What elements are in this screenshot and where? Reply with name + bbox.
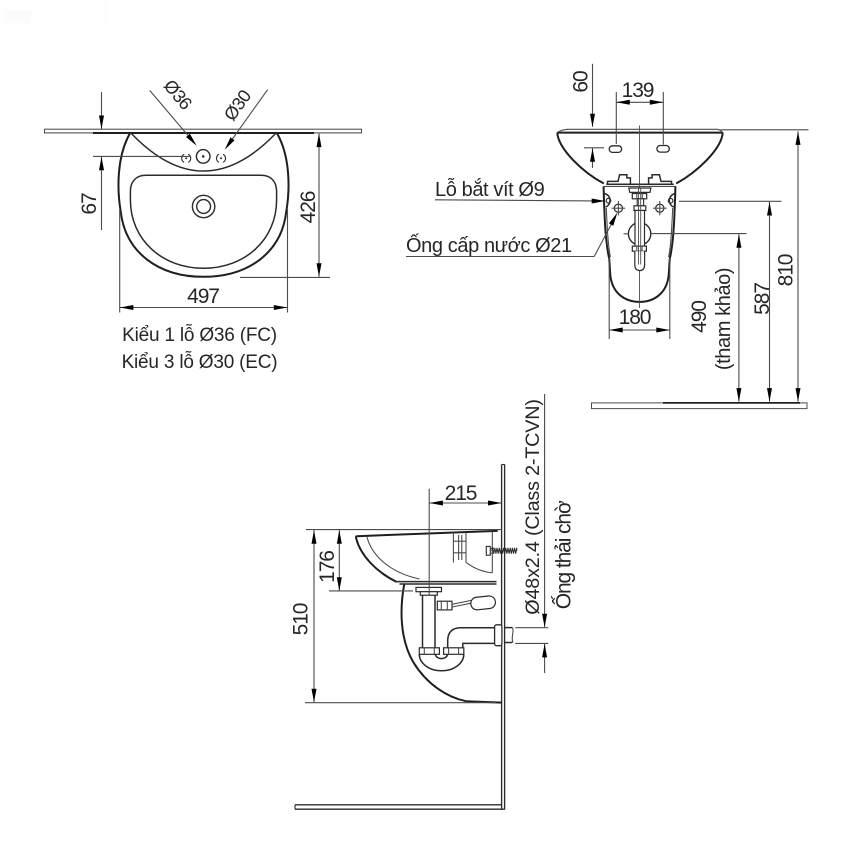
svg-text:176: 176 (316, 551, 339, 583)
svg-text:Ống thải chờ: Ống thải chờ (551, 500, 575, 609)
svg-text:510: 510 (290, 603, 313, 635)
svg-text:60: 60 (570, 71, 593, 93)
svg-text:67: 67 (78, 193, 101, 215)
svg-text:497: 497 (187, 285, 219, 308)
svg-text:490: 490 (688, 301, 711, 333)
svg-text:215: 215 (445, 482, 477, 505)
svg-text:426: 426 (297, 191, 320, 223)
svg-text:Ø48x2.4 (Class 2-TCVN): Ø48x2.4 (Class 2-TCVN) (522, 399, 544, 614)
svg-text:Kiểu 3 lỗ Ø30 (EC): Kiểu 3 lỗ Ø30 (EC) (122, 351, 278, 373)
svg-text:180: 180 (619, 306, 651, 329)
svg-text:Ống cấp nước Ø21: Ống cấp nước Ø21 (406, 233, 572, 257)
svg-text:Kiểu 1 lỗ Ø36 (FC): Kiểu 1 lỗ Ø36 (FC) (122, 324, 277, 346)
svg-text:810: 810 (775, 254, 798, 286)
svg-text:Lỗ bắt vít Ø9: Lỗ bắt vít Ø9 (435, 178, 545, 201)
svg-text:587: 587 (751, 283, 774, 315)
svg-text:(tham khảo): (tham khảo) (713, 268, 735, 370)
svg-text:139: 139 (622, 79, 654, 102)
